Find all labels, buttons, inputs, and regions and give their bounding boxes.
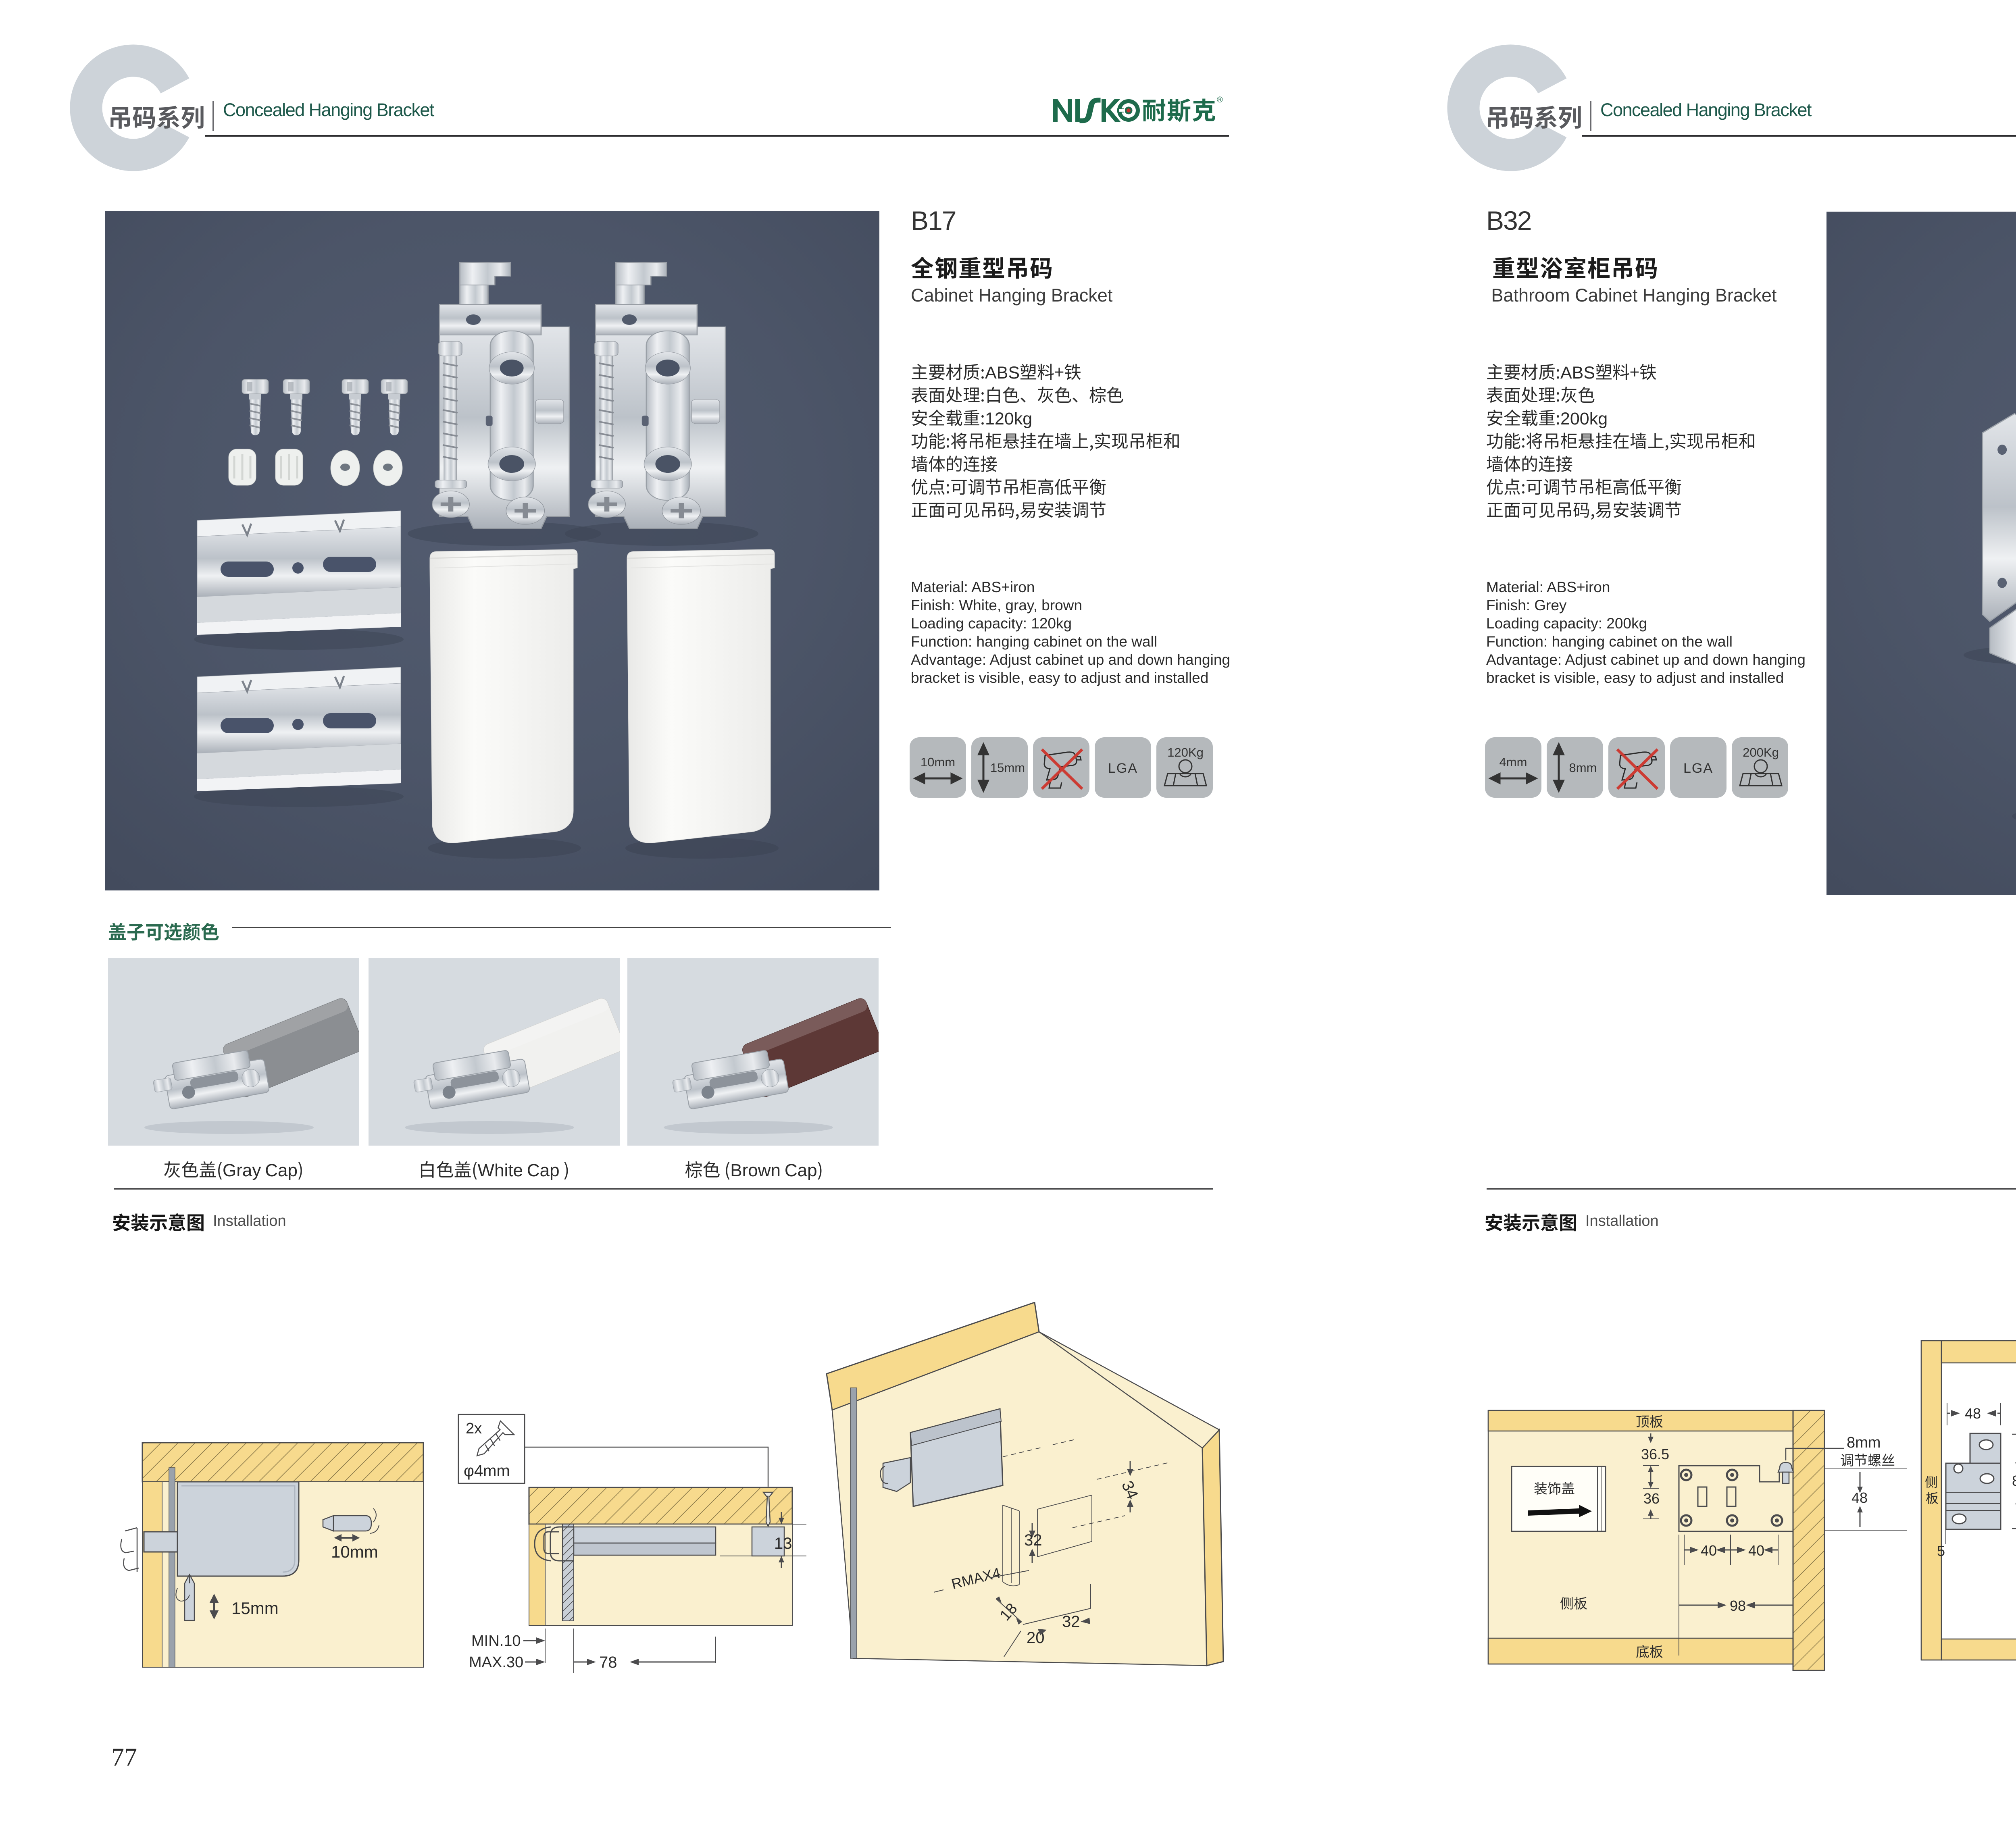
svg-text:40: 40	[1701, 1542, 1717, 1559]
svg-text:8mm: 8mm	[1847, 1434, 1881, 1451]
svg-text:5: 5	[1937, 1543, 1945, 1559]
svg-text:32: 32	[1062, 1613, 1080, 1631]
svg-text:48: 48	[1851, 1489, 1868, 1506]
svg-text:底板: 底板	[1636, 1641, 1663, 1661]
svg-text:侧板: 侧板	[1925, 1472, 1939, 1507]
svg-text:36.5: 36.5	[1641, 1446, 1669, 1462]
svg-text:®: ®	[1217, 96, 1223, 104]
svg-text:MAX.30: MAX.30	[469, 1654, 523, 1671]
svg-text:顶板: 顶板	[1636, 1411, 1663, 1431]
svg-text:LGA: LGA	[1683, 761, 1713, 776]
svg-text:2x: 2x	[466, 1420, 482, 1437]
svg-text:36: 36	[1643, 1490, 1660, 1507]
svg-text:耐斯克: 耐斯克	[1142, 94, 1217, 126]
svg-text:120Kg: 120Kg	[1167, 745, 1204, 759]
svg-text:侧板: 侧板	[1560, 1593, 1587, 1612]
svg-text:13: 13	[774, 1535, 792, 1552]
svg-text:调节螺丝: 调节螺丝	[1840, 1450, 1895, 1469]
svg-text:LGA: LGA	[1108, 761, 1138, 776]
svg-text:15mm: 15mm	[990, 761, 1025, 775]
svg-text:MIN.10: MIN.10	[471, 1633, 521, 1649]
svg-text:32: 32	[1024, 1531, 1042, 1549]
svg-text:80: 80	[2012, 1473, 2016, 1489]
svg-text:装饰盖: 装饰盖	[1534, 1478, 1575, 1498]
svg-text:200Kg: 200Kg	[1743, 745, 1779, 759]
svg-text:4mm: 4mm	[1500, 755, 1527, 769]
svg-text:48: 48	[1965, 1405, 1981, 1422]
svg-text:10mm: 10mm	[331, 1542, 378, 1561]
svg-text:8mm: 8mm	[1569, 761, 1597, 775]
svg-text:15mm: 15mm	[231, 1599, 279, 1618]
svg-text:10mm: 10mm	[921, 755, 955, 769]
svg-text:98: 98	[1730, 1597, 1746, 1614]
svg-text:φ4mm: φ4mm	[464, 1462, 510, 1480]
svg-text:78: 78	[599, 1654, 617, 1671]
svg-text:40: 40	[1748, 1542, 1764, 1559]
